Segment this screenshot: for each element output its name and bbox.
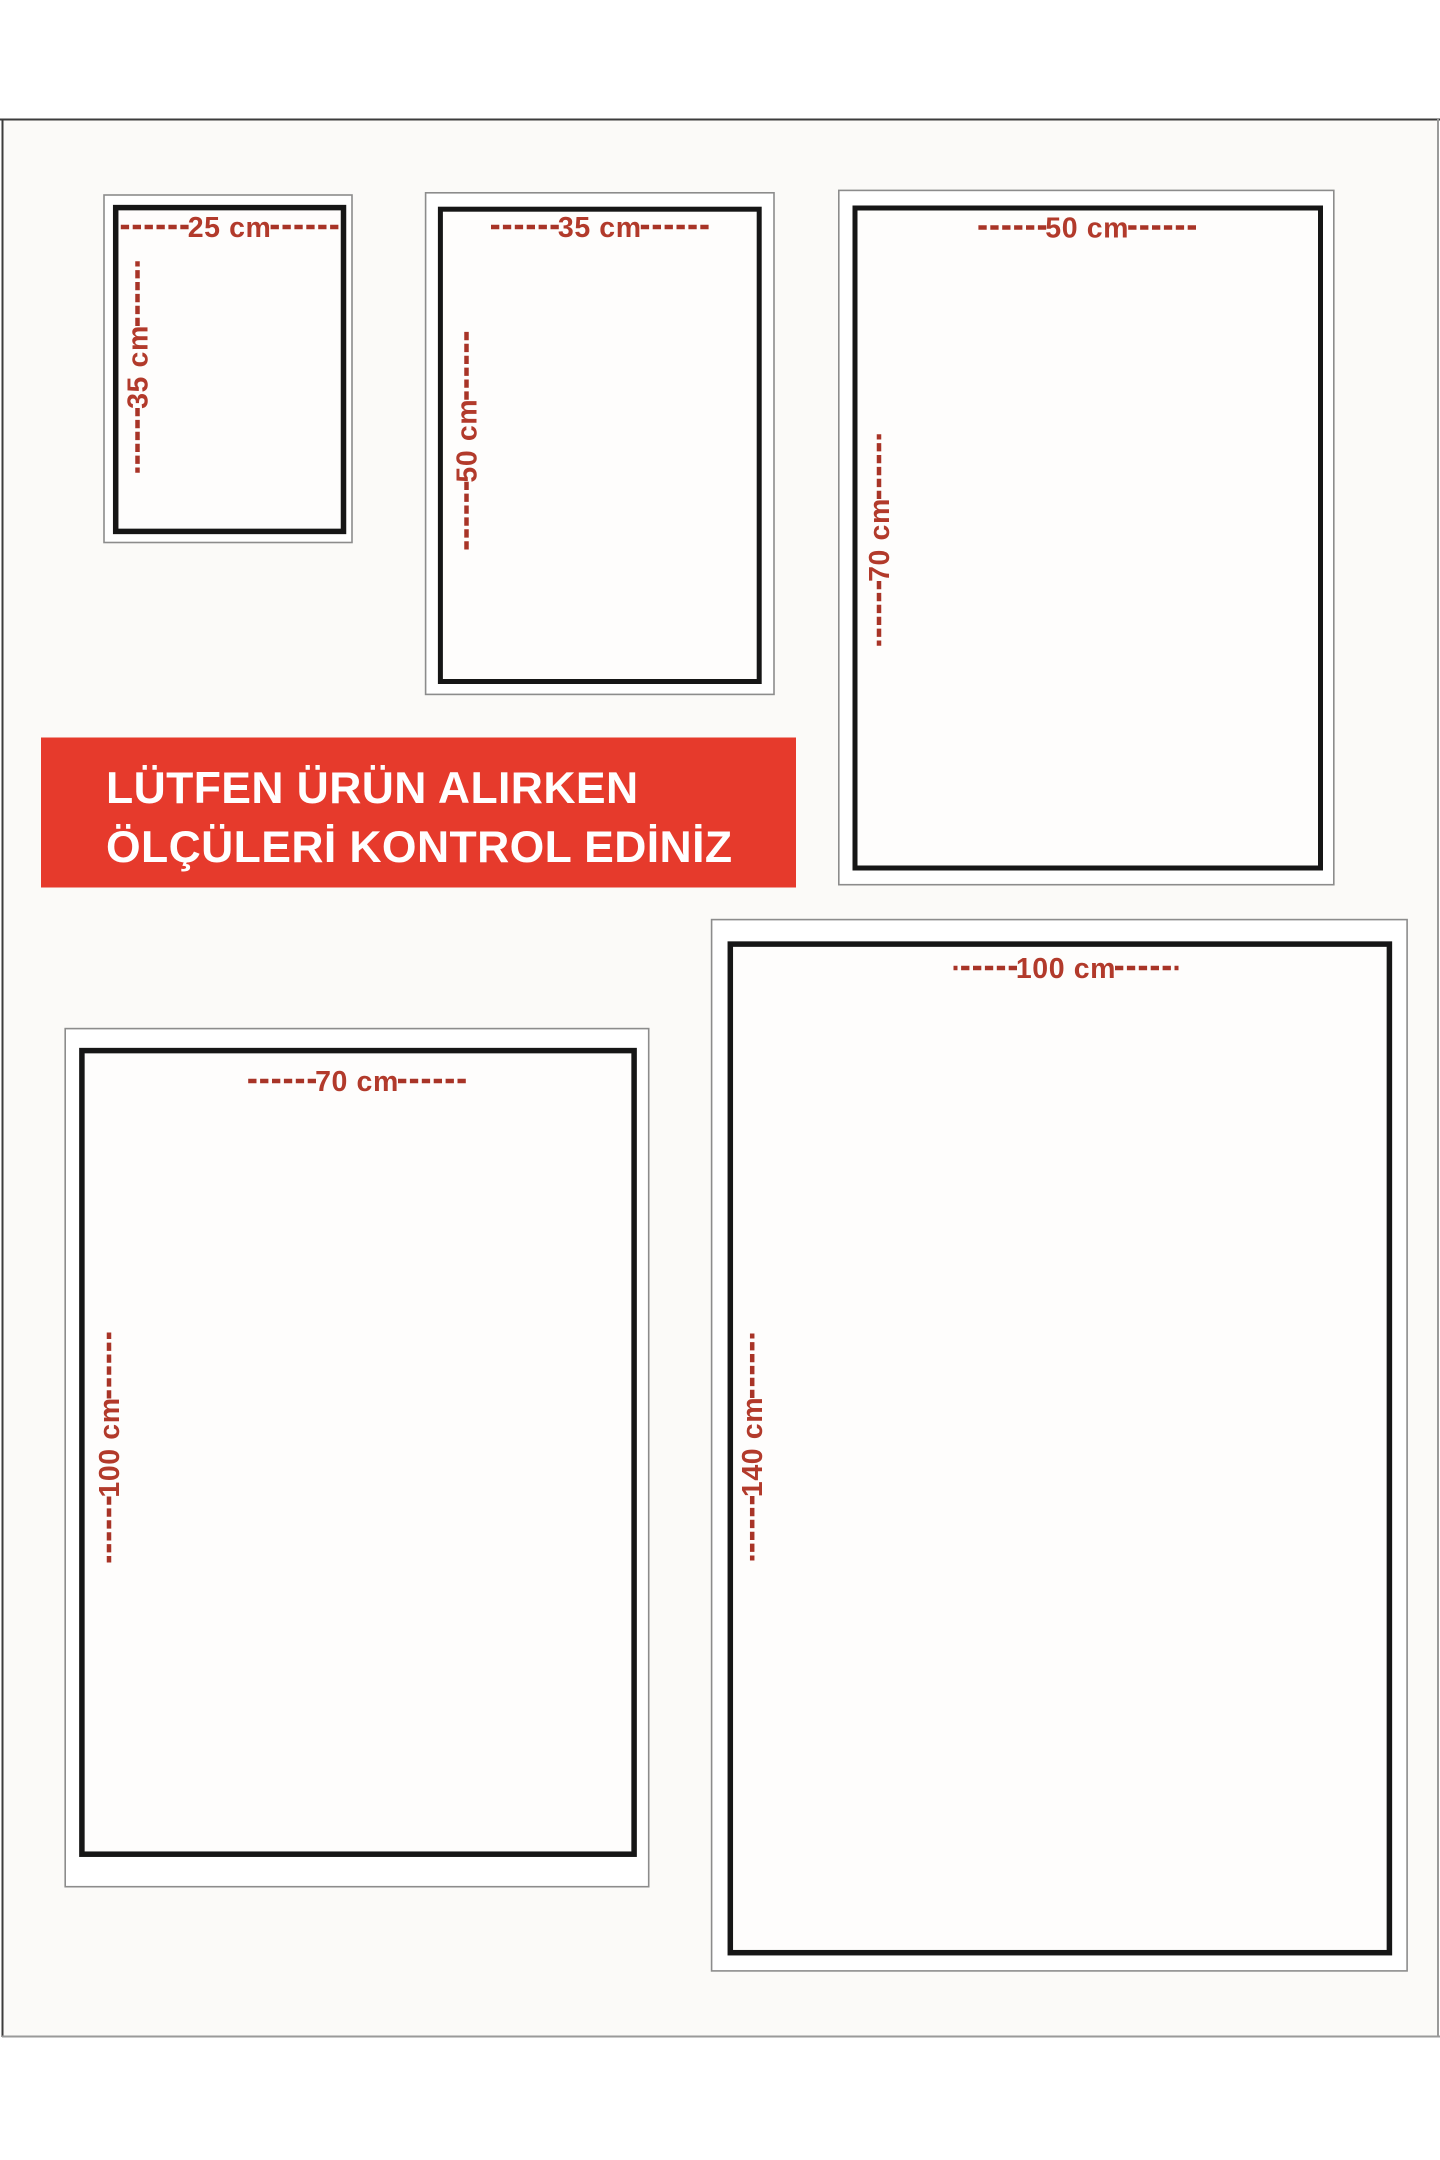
- svg-text:50 cm: 50 cm: [452, 399, 484, 483]
- svg-text:100 cm: 100 cm: [94, 1397, 126, 1497]
- svg-text:100 cm: 100 cm: [1016, 953, 1116, 985]
- svg-text:70 cm: 70 cm: [315, 1066, 399, 1098]
- svg-text:25 cm: 25 cm: [188, 212, 272, 244]
- svg-text:140 cm: 140 cm: [737, 1397, 769, 1497]
- svg-text:LÜTFEN ÜRÜN ALIRKEN: LÜTFEN ÜRÜN ALIRKEN: [106, 764, 639, 813]
- svg-text:35 cm: 35 cm: [558, 212, 642, 244]
- svg-text:50 cm: 50 cm: [1045, 213, 1129, 245]
- svg-text:35 cm: 35 cm: [123, 325, 155, 409]
- svg-text:ÖLÇÜLERİ KONTROL EDİNİZ: ÖLÇÜLERİ KONTROL EDİNİZ: [106, 823, 732, 872]
- svg-text:70 cm: 70 cm: [864, 498, 896, 582]
